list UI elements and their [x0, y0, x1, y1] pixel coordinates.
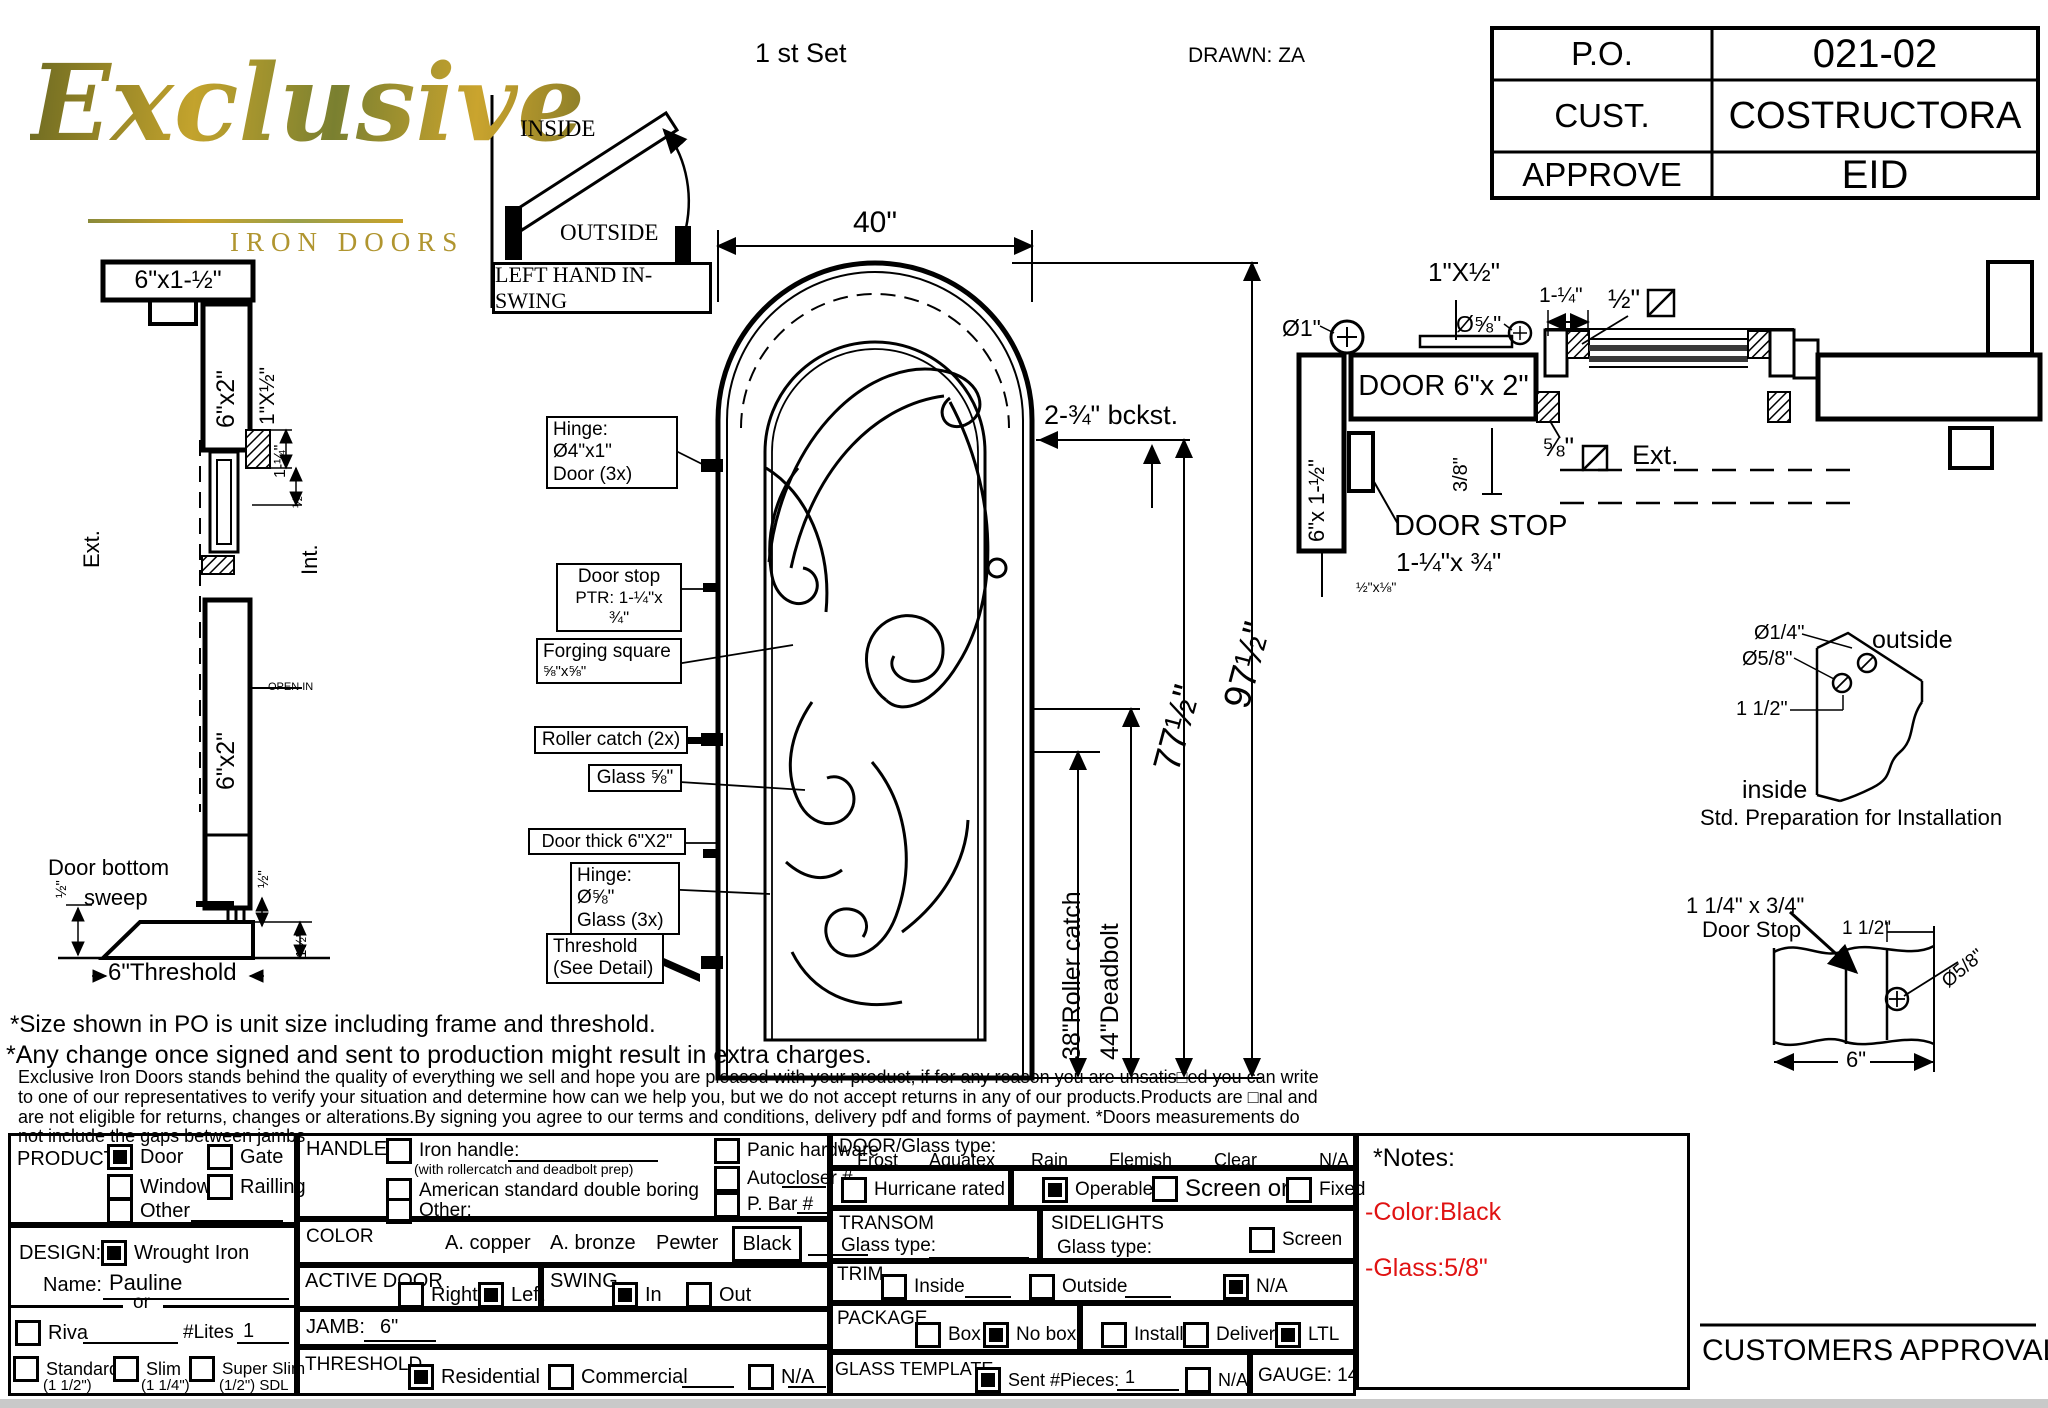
jamb-size-label: 6"x2"	[212, 370, 240, 428]
bottom-scroll-strip	[0, 1399, 2048, 1408]
open-in-label: OPEN IN	[268, 681, 313, 693]
trim-outside-label: Outside	[1062, 1276, 1127, 1298]
product-label: PRODUCT:	[17, 1148, 119, 1170]
transom-section: TRANSOM Glass type:	[830, 1208, 1040, 1261]
no-box-label: No box	[1016, 1324, 1076, 1346]
commercial-checkbox[interactable]	[548, 1364, 574, 1390]
swing-inside-label: INSIDE	[520, 116, 595, 142]
plan-dim-half-glass: ½"	[1608, 284, 1640, 314]
sweep-label-1: Door bottom	[48, 856, 169, 881]
callout-hinge-door: Hinge: Ø4"x1" Door (3x)	[546, 416, 678, 489]
prep-dia-58: Ø5/8"	[1742, 648, 1792, 670]
box-checkbox[interactable]	[915, 1322, 941, 1348]
wrought-iron-checkbox[interactable]	[101, 1240, 127, 1266]
railling-option-label: Railling	[240, 1176, 306, 1199]
standard-sub: (1 1/2")	[43, 1378, 92, 1395]
callout-hinge-door-line2: Door (3x)	[553, 464, 671, 486]
sidelights-screen-label: Screen	[1282, 1229, 1342, 1251]
checkbox-glass-template-na[interactable]: N/A	[1185, 1367, 1248, 1393]
checkbox-hurricane[interactable]: Hurricane rated	[841, 1177, 1005, 1203]
jamb-dim-half-a: ½"	[290, 491, 306, 508]
jamb-field-section: JAMB: 6"	[297, 1309, 830, 1347]
swing-label: SWING	[550, 1270, 618, 1292]
checkbox-in[interactable]: In	[612, 1282, 662, 1308]
p-bar-field[interactable]	[797, 1210, 827, 1214]
callout-hinge-glass-line1: Hinge: Ø⅝"	[577, 865, 673, 910]
glass-template-na-label: N/A	[1218, 1370, 1248, 1391]
autocloser-field[interactable]	[782, 1184, 826, 1188]
screen-or-label: Screen or	[1185, 1175, 1289, 1203]
callout-threshold: Threshold (See Detail)	[546, 933, 664, 984]
checkbox-trim-inside[interactable]: Inside	[881, 1274, 965, 1300]
pieces-field[interactable]	[1117, 1387, 1179, 1391]
note-line-1: *Size shown in PO is unit size including…	[10, 1012, 656, 1039]
handle-section: HANDLE Iron handle: (with rollercatch an…	[297, 1133, 830, 1219]
install-label: Install	[1134, 1324, 1184, 1346]
stop-dim-1-1-2: 1 1/2"	[1842, 918, 1891, 939]
hurricane-label: Hurricane rated	[874, 1179, 1005, 1201]
commercial-field[interactable]	[682, 1384, 734, 1388]
sidelights-label: SIDELIGHTS	[1051, 1213, 1164, 1234]
pieces-value[interactable]: 1	[1125, 1367, 1135, 1387]
ltl-checkbox[interactable]	[1275, 1322, 1301, 1348]
in-label: In	[645, 1284, 662, 1307]
slim-sub: (1 1/4")	[141, 1378, 190, 1395]
callout-glass: Glass ⅝"	[588, 764, 682, 792]
dim-half-right: ½"	[256, 870, 273, 888]
dim-half-left: ½"	[54, 880, 71, 898]
swing-section: SWING In Out	[541, 1265, 830, 1309]
plan-small-size: ½"x⅛"	[1356, 580, 1396, 596]
logo-subtitle: IRON DOORS	[230, 227, 464, 258]
callout-door-stop-line2: PTR: 1-¼"x ¾"	[563, 588, 675, 628]
dim-1-half: 1½"	[294, 932, 311, 958]
callout-forging-line2: ⅝"x⅝"	[543, 663, 675, 681]
checkbox-operable[interactable]: Operable	[1042, 1177, 1153, 1203]
or-divider-left	[11, 1305, 123, 1308]
plan-door-stop-label: DOOR STOP	[1394, 510, 1568, 542]
checkbox-delivery[interactable]: Delivery	[1183, 1322, 1285, 1348]
residential-label: Residential	[441, 1366, 540, 1389]
callout-hinge-door-line1: Hinge: Ø4"x1"	[553, 419, 671, 464]
hurricane-section: Hurricane rated	[830, 1168, 1011, 1208]
dim-77-half: 77½"	[1146, 681, 1210, 776]
plan-door-label: DOOR 6"x 2"	[1351, 370, 1536, 402]
operable-section: Operable Screen or Fixed	[1011, 1168, 1356, 1208]
out-checkbox[interactable]	[686, 1282, 712, 1308]
checkbox-trim-outside[interactable]: Outside	[1029, 1274, 1127, 1300]
checkbox-screen-or[interactable]: Screen or	[1152, 1175, 1289, 1203]
jamb-dim-1-1-4: 1-¼"	[272, 445, 290, 478]
left-label: Left	[511, 1284, 544, 1307]
in-checkbox[interactable]	[612, 1282, 638, 1308]
window-option-label: Window	[140, 1176, 211, 1199]
stop-size-label: 1 1/4" x 3/4"	[1686, 894, 1804, 919]
panic-hardware-checkbox[interactable]	[714, 1138, 740, 1164]
plan-dia-58: Ø⅝"	[1456, 312, 1501, 338]
super-slim-checkbox[interactable]	[189, 1356, 215, 1382]
glass-template-label: GLASS TEMPLATE	[835, 1359, 993, 1379]
screen-or-checkbox[interactable]	[1152, 1176, 1178, 1202]
color-label: COLOR	[306, 1226, 374, 1247]
riva-field[interactable]	[83, 1340, 178, 1344]
trim-na-checkbox[interactable]	[1223, 1274, 1249, 1300]
stop-name-label: Door Stop	[1702, 918, 1801, 943]
glass-template-section: GLASS TEMPLATE Sent #Pieces: 1 N/A	[830, 1352, 1250, 1396]
company-logo: Exclusive	[30, 40, 585, 165]
notes-box: *Notes: -Color:Black -Glass:5/8"	[1356, 1133, 1690, 1390]
checkbox-trim-na[interactable]: N/A	[1223, 1274, 1288, 1300]
door-glass-section: DOOR/Glass type: Frost Aquatex Rain Flem…	[830, 1133, 1356, 1168]
lites-label: #Lites	[183, 1322, 234, 1343]
prep-dim-1-1-2: 1 1/2"	[1736, 698, 1788, 720]
active-door-section: ACTIVE DOOR Right Left	[297, 1265, 541, 1309]
stop-dia-58: Ø5/8"	[1938, 945, 1988, 992]
drawing-sheet: Exclusive IRON DOORS 1 st Set DRAWN: ZA …	[0, 0, 2048, 1408]
hurricane-checkbox[interactable]	[841, 1177, 867, 1203]
prep-caption: Std. Preparation for Installation	[1700, 806, 2002, 831]
callout-threshold-line1: Threshold	[553, 936, 657, 958]
plan-dim-3-8: 3/8"	[1450, 457, 1472, 492]
design-label: DESIGN:	[19, 1242, 101, 1264]
sent-pieces-label: Sent #Pieces:	[1008, 1370, 1119, 1391]
product-other-label: Other	[140, 1200, 190, 1223]
swing-caption-box: LEFT HAND IN-SWING	[492, 262, 712, 314]
fixed-checkbox[interactable]	[1286, 1177, 1312, 1203]
product-other-field[interactable]	[191, 1218, 283, 1222]
swing-caption: LEFT HAND IN-SWING	[495, 262, 709, 314]
callout-door-thick: Door thick 6"X2"	[528, 828, 686, 855]
door-checkbox[interactable]	[107, 1144, 133, 1170]
trim-inside-label: Inside	[914, 1276, 965, 1298]
operable-label: Operable	[1075, 1179, 1153, 1201]
product-section: PRODUCT: Door Gate Window Railling Other	[8, 1133, 297, 1225]
delivery-checkbox[interactable]	[1183, 1322, 1209, 1348]
prep-inside-label: inside	[1742, 776, 1807, 804]
swing-outside-label: OUTSIDE	[560, 220, 658, 246]
elevation-lines	[648, 230, 1262, 1078]
box-label: Box	[948, 1324, 981, 1346]
install-checkbox[interactable]	[1101, 1322, 1127, 1348]
plan-trim-size: 1"X½"	[1428, 258, 1500, 287]
right-label: Right	[431, 1284, 478, 1307]
callout-door-stop: Door stop PTR: 1-¼"x ¾"	[556, 563, 682, 632]
glass-note: -Glass:5/8"	[1365, 1254, 1488, 1282]
logo-underline	[88, 219, 403, 223]
iron-handle-sub: (with rollercatch and deadbolt prep)	[414, 1162, 633, 1178]
color-note: -Color:Black	[1365, 1198, 1501, 1226]
gauge-section: GAUGE: 14	[1250, 1352, 1356, 1396]
callout-door-stop-line1: Door stop	[563, 566, 675, 588]
gate-option-label: Gate	[240, 1146, 283, 1169]
wrought-iron-label: Wrought Iron	[134, 1242, 249, 1265]
design-name-field[interactable]	[103, 1296, 289, 1300]
out-label: Out	[719, 1284, 751, 1307]
callout-roller-catch: Roller catch (2x)	[534, 726, 688, 754]
design-section: DESIGN: Wrought Iron Name: Pauline or Ri…	[8, 1225, 297, 1396]
jamb-header-size: 6"x1-½"	[110, 266, 246, 294]
threshold-na-field[interactable]	[788, 1384, 826, 1388]
customer-value: COSTRUCTORA	[1712, 80, 2038, 152]
glass-template-na-checkbox[interactable]	[1185, 1367, 1211, 1393]
customers-approval-label: CUSTOMERS APPROVAL	[1702, 1334, 2036, 1368]
plan-jamb-size: 6"x 1-½"	[1305, 459, 1330, 542]
callout-forging-square: Forging square ⅝"x⅝"	[536, 638, 682, 684]
scrollwork	[766, 369, 988, 1004]
jamb-field-label: JAMB:	[306, 1316, 365, 1338]
or-label: or	[133, 1292, 150, 1313]
riva-label: Riva	[48, 1322, 88, 1345]
deadbolt-dim: 44"Deadbolt	[1096, 923, 1124, 1060]
backset-dim: 2-¾" bckst.	[1044, 400, 1178, 430]
color-copper[interactable]: A. copper	[445, 1232, 531, 1254]
prep-dia-14: Ø1/4"	[1754, 622, 1804, 644]
exterior-label: Ext.	[80, 530, 105, 568]
callout-threshold-line2: (See Detail)	[553, 958, 657, 980]
package-label: PACKAGE	[837, 1308, 927, 1329]
autocloser-checkbox[interactable]	[714, 1166, 740, 1192]
ltl-label: LTL	[1308, 1324, 1339, 1346]
window-checkbox[interactable]	[107, 1174, 133, 1200]
p-bar-checkbox[interactable]	[714, 1192, 740, 1218]
package-delivery-section: Install Delivery LTL	[1080, 1303, 1356, 1352]
or-divider-right	[163, 1305, 294, 1308]
plan-ext-label: Ext.	[1632, 440, 1679, 470]
color-section: COLOR A. copper A. bronze Pewter Black	[297, 1219, 830, 1265]
threshold-section: THRESHOLD Residential Commercial N/A	[297, 1347, 830, 1396]
left-checkbox[interactable]	[478, 1282, 504, 1308]
super-slim-label: Super Slim	[222, 1359, 305, 1379]
right-checkbox[interactable]	[398, 1282, 424, 1308]
sweep-label-2: sweep	[84, 886, 148, 911]
checkbox-ltl[interactable]: LTL	[1275, 1322, 1339, 1348]
checkbox-box[interactable]: Box	[915, 1322, 981, 1348]
trim-inside-checkbox[interactable]	[881, 1274, 907, 1300]
commercial-label: Commercial	[581, 1366, 688, 1389]
trim-outside-checkbox[interactable]	[1029, 1274, 1055, 1300]
plan-dim-5-8: ⅝"	[1542, 432, 1574, 462]
checkbox-fixed[interactable]: Fixed	[1286, 1177, 1365, 1203]
plan-stop-size: 1-¼"x ¾"	[1396, 548, 1501, 577]
door-option-label: Door	[140, 1146, 183, 1169]
slim-checkbox[interactable]	[113, 1356, 139, 1382]
interior-label: Int.	[298, 544, 323, 575]
checkbox-no-box[interactable]: No box	[983, 1322, 1076, 1348]
checkbox-sent-pieces[interactable]: Sent #Pieces:	[975, 1367, 1119, 1393]
note-line-2: *Any change once signed and sent to prod…	[6, 1041, 872, 1069]
product-other-checkbox[interactable]	[107, 1198, 133, 1224]
trim-outside-field[interactable]	[1125, 1294, 1171, 1298]
stop-width-dim: 6"	[1842, 1048, 1870, 1073]
operable-checkbox[interactable]	[1042, 1177, 1068, 1203]
checkbox-wrought-iron[interactable]: Wrought Iron	[101, 1240, 249, 1266]
riva-checkbox[interactable]	[15, 1320, 41, 1346]
transom-label: TRANSOM	[839, 1213, 934, 1234]
leaf-size-label: 6"x2"	[212, 732, 240, 790]
callout-forging-line1: Forging square	[543, 641, 675, 663]
std-prep-lines	[1790, 633, 1922, 801]
checkbox-left[interactable]: Left	[478, 1282, 544, 1308]
gate-checkbox[interactable]	[207, 1144, 233, 1170]
customer-label: CUST.	[1492, 80, 1712, 152]
jamb-value[interactable]: 6"	[380, 1316, 398, 1338]
package-section: PACKAGE Box No box	[830, 1303, 1080, 1352]
jamb-trim-size: 1"X½"	[256, 367, 280, 425]
jamb-value-field[interactable]	[364, 1338, 436, 1342]
sidelights-glass-type-label: Glass type:	[1057, 1237, 1152, 1258]
color-pewter[interactable]: Pewter	[656, 1232, 718, 1254]
residential-checkbox[interactable]	[408, 1364, 434, 1390]
lites-field[interactable]	[237, 1340, 289, 1344]
set-label: 1 st Set	[755, 38, 847, 68]
sidelights-section: SIDELIGHTS Glass type: Screen	[1040, 1208, 1356, 1261]
door-width-dim: 40"	[820, 206, 930, 240]
plan-dim-1-1-4: 1-¼"	[1539, 284, 1583, 308]
threshold-field-label: THRESHOLD	[305, 1354, 422, 1375]
checkbox-out[interactable]: Out	[686, 1282, 751, 1308]
transom-glass-type-label: Glass type:	[841, 1235, 936, 1256]
callout-hinge-glass-line2: Glass (3x)	[577, 910, 673, 932]
standard-checkbox[interactable]	[13, 1356, 39, 1382]
checkbox-riva[interactable]: Riva	[15, 1320, 88, 1346]
iron-handle-label: Iron handle:	[419, 1140, 519, 1162]
dim-97-half: 97½"	[1216, 618, 1280, 713]
po-label: P.O.	[1492, 28, 1712, 80]
checkbox-window[interactable]: Window	[107, 1174, 211, 1200]
gauge-value: GAUGE: 14	[1258, 1365, 1358, 1386]
sent-pieces-checkbox[interactable]	[975, 1367, 1001, 1393]
trim-inside-field[interactable]	[965, 1294, 1011, 1298]
plan-dia-1: Ø1"	[1282, 316, 1321, 342]
color-black-selected[interactable]: Black	[732, 1226, 802, 1262]
checkbox-door[interactable]: Door	[107, 1144, 183, 1170]
approve-value: EID	[1712, 152, 2038, 198]
color-bronze[interactable]: A. bronze	[550, 1232, 636, 1254]
checkbox-install[interactable]: Install	[1101, 1322, 1184, 1348]
checkbox-right[interactable]: Right	[398, 1282, 478, 1308]
handle-label: HANDLE	[306, 1138, 387, 1160]
checkbox-residential[interactable]: Residential	[408, 1364, 540, 1390]
transom-glass-type-field[interactable]	[929, 1255, 1029, 1259]
threshold-dim-label: 6"Threshold	[108, 960, 237, 987]
drawn-by-label: DRAWN: ZA	[1188, 44, 1305, 68]
design-name-label: Name:	[43, 1274, 102, 1296]
roller-catch-dim: 38"Roller catch	[1058, 891, 1086, 1060]
approve-label: APPROVE	[1492, 152, 1712, 198]
no-box-checkbox[interactable]	[983, 1322, 1009, 1348]
notes-box-title: *Notes:	[1373, 1144, 1455, 1172]
prep-outside-label: outside	[1872, 626, 1953, 654]
po-value: 021-02	[1712, 28, 2038, 80]
trim-label: TRIM	[837, 1264, 883, 1285]
trim-na-label: N/A	[1256, 1276, 1288, 1298]
checkbox-sidelights-screen[interactable]: Screen	[1249, 1227, 1342, 1253]
checkbox-gate[interactable]: Gate	[207, 1144, 283, 1170]
callout-hinge-glass: Hinge: Ø⅝" Glass (3x)	[570, 862, 680, 935]
sidelights-screen-checkbox[interactable]	[1249, 1227, 1275, 1253]
trim-section: TRIM Inside Outside N/A	[830, 1261, 1356, 1303]
checkbox-commercial[interactable]: Commercial	[548, 1364, 688, 1390]
checkbox-product-other[interactable]: Other	[107, 1198, 190, 1224]
super-slim-sub: (1/2") SDL	[219, 1378, 289, 1395]
checkbox-railling[interactable]: Railling	[207, 1174, 306, 1200]
threshold-na-checkbox[interactable]	[748, 1364, 774, 1390]
railling-checkbox[interactable]	[207, 1174, 233, 1200]
iron-handle-checkbox[interactable]	[386, 1138, 412, 1164]
checkbox-p-bar[interactable]: P. Bar #	[714, 1192, 813, 1218]
color-black-label: Black	[743, 1233, 792, 1256]
